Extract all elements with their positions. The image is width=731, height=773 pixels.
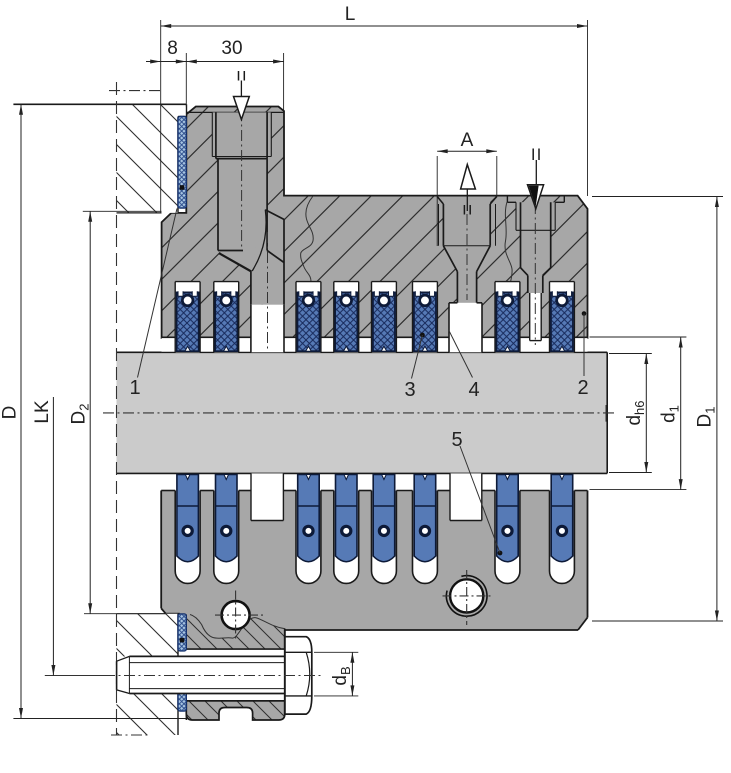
svg-text:30: 30 (221, 38, 242, 59)
svg-text:5: 5 (451, 429, 462, 451)
svg-text:LK: LK (32, 400, 53, 424)
svg-text:1: 1 (129, 377, 140, 399)
svg-text:L: L (345, 4, 356, 25)
svg-text:3: 3 (404, 379, 415, 401)
svg-text:A: A (461, 130, 474, 151)
svg-text:2: 2 (577, 377, 588, 399)
svg-text:8: 8 (167, 38, 178, 59)
svg-text:D: D (0, 406, 21, 420)
svg-text:4: 4 (468, 379, 479, 401)
